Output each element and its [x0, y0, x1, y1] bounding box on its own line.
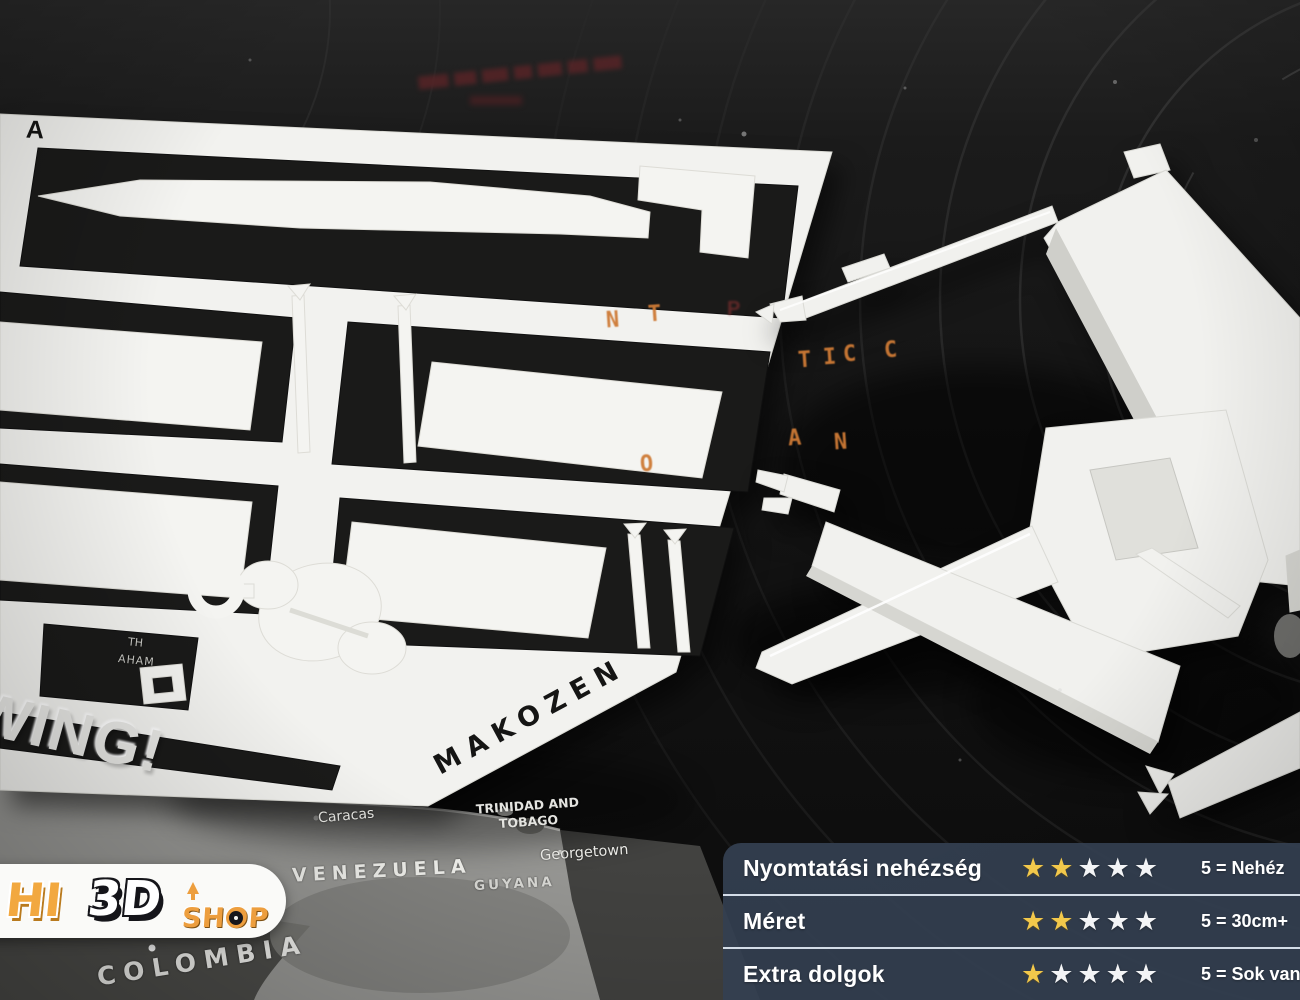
star-icon: ★: [1077, 961, 1101, 988]
logo-hi-text: HI: [3, 873, 64, 927]
kit-card: [0, 114, 832, 806]
ocean-letter: N: [605, 308, 620, 334]
product-photo: A MAKOZEN WING! COLOMBIA VENEZUELA Carac…: [0, 0, 1300, 1000]
ocean-letter-faint: P: [727, 298, 740, 321]
star-icon: ★: [1134, 855, 1158, 882]
star-icon: ★: [1049, 961, 1073, 988]
star-rating: ★★★★★: [1021, 855, 1195, 882]
rating-scale-hint: 5 = Sok van: [1201, 964, 1300, 985]
ocean-letter: O: [639, 452, 654, 478]
star-icon: ★: [1021, 908, 1045, 935]
blurred-map-text-2: [470, 96, 522, 105]
ocean-letter: T: [797, 348, 812, 374]
rating-scale-hint: 5 = 30cm+: [1201, 911, 1288, 932]
ocean-letter: C: [842, 342, 857, 368]
logo-3d-text: 3D: [85, 871, 164, 927]
map-label-bahamas-fragment: TH: [127, 635, 143, 649]
logo-o-disc: [226, 908, 246, 928]
star-icon: ★: [1134, 961, 1158, 988]
star-icon: ★: [1077, 855, 1101, 882]
star-icon: ★: [1106, 961, 1130, 988]
rating-row-extras: Extra dolgok ★★★★★ 5 = Sok van: [723, 947, 1300, 1000]
ocean-letter: A: [787, 426, 802, 452]
ocean-letter: I: [822, 345, 837, 371]
rating-label: Méret: [743, 908, 1021, 935]
rocket-icon: [185, 882, 201, 902]
star-icon: ★: [1049, 908, 1073, 935]
star-rating: ★★★★★: [1021, 908, 1195, 935]
ratings-panel: Nyomtatási nehézség ★★★★★ 5 = Nehéz Mére…: [723, 843, 1300, 1000]
ocean-letter: N: [833, 430, 848, 456]
star-icon: ★: [1021, 961, 1045, 988]
rating-row-print-difficulty: Nyomtatási nehézség ★★★★★ 5 = Nehéz: [723, 843, 1300, 894]
star-rating: ★★★★★: [1021, 961, 1195, 988]
star-icon: ★: [1021, 855, 1045, 882]
logo-badge: HI 3D SHOP: [0, 864, 286, 938]
star-icon: ★: [1106, 855, 1130, 882]
sprue-corner-letter: A: [25, 116, 45, 146]
rating-label: Nyomtatási nehézség: [743, 855, 1021, 882]
rating-label: Extra dolgok: [743, 961, 1021, 988]
star-icon: ★: [1049, 855, 1073, 882]
ocean-letter: T: [647, 302, 662, 328]
star-icon: ★: [1077, 908, 1101, 935]
ocean-letter: C: [883, 338, 898, 364]
rating-row-size: Méret ★★★★★ 5 = 30cm+: [723, 894, 1300, 947]
star-icon: ★: [1134, 908, 1158, 935]
star-icon: ★: [1106, 908, 1130, 935]
rating-scale-hint: 5 = Nehéz: [1201, 858, 1285, 879]
